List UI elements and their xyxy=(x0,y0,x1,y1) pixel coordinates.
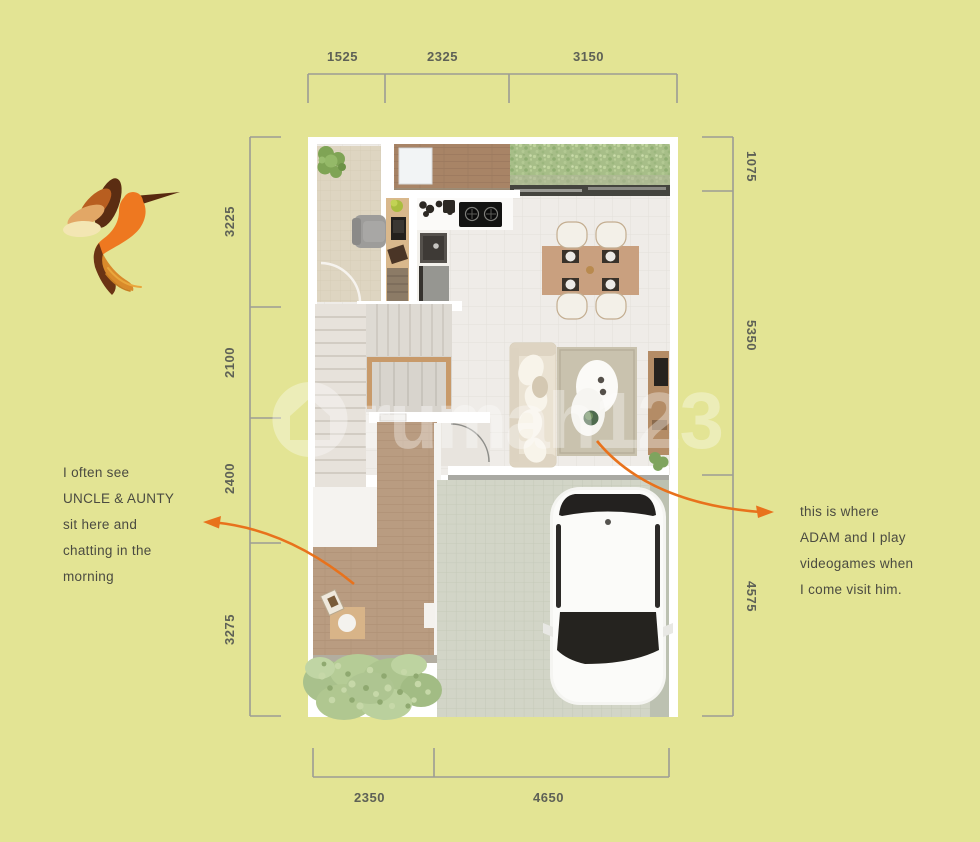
svg-text:rumah123: rumah123 xyxy=(360,376,722,465)
